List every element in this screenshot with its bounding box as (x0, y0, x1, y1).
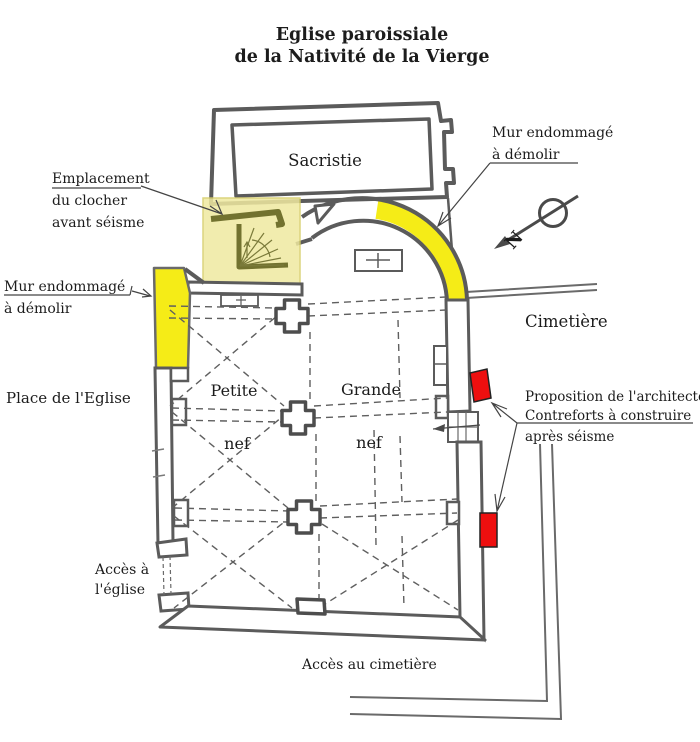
damaged-wall-right-line1: Mur endommagé (492, 125, 613, 141)
east-wall-upper (446, 300, 470, 412)
west-pilaster-1 (171, 368, 188, 381)
pier-1 (276, 300, 308, 332)
damaged-wall-left-line1: Mur endommagé (4, 279, 125, 295)
small-nave-label-1: Petite (211, 381, 258, 400)
nave-piers (276, 300, 325, 614)
north-arrow-icon: N (494, 196, 578, 253)
large-nave-transverse-arches (308, 297, 457, 518)
junction-marker-arrow-icon (433, 424, 445, 432)
east-window-niche (434, 346, 447, 385)
engaged-pier-south (297, 599, 325, 614)
large-nave-vault-cross (322, 520, 458, 610)
east-pilaster-1 (436, 396, 448, 418)
cemetery-access-label: Accès au cimetière (301, 657, 437, 673)
large-nave-longitudinal-ribs (310, 320, 404, 608)
cemetery-north-wall (466, 284, 597, 298)
damaged-wall-right-leader (438, 163, 578, 226)
west-wall (155, 368, 173, 545)
church-access-label-1: Accès à (94, 561, 149, 578)
cemetery-path-outer (350, 444, 561, 719)
large-nave-label-1: Grande (341, 380, 401, 399)
architect-proposal-line2: Contreforts à construire (525, 408, 691, 424)
architect-proposal-line1: Proposition de l'architecte (525, 389, 700, 405)
entrance-opening (163, 556, 171, 595)
buttress-2 (480, 513, 497, 547)
bell-tower-annotation-line2: du clocher (52, 193, 127, 209)
page-title-line1: Eglise paroissiale (276, 25, 449, 45)
apse (296, 198, 467, 302)
large-nave-label-2: nef (356, 433, 383, 452)
small-nave-label-2: nef (224, 434, 251, 453)
floor-plan-drawing: N Eglise paroissiale de la Nativité de l… (0, 0, 700, 742)
bell-tower-annotation-line3: avant séisme (52, 215, 144, 231)
vault-rib-lines (169, 297, 458, 610)
sacristy-label: Sacristie (288, 151, 362, 170)
damaged-wall-right-line2: à démolir (492, 146, 560, 163)
page-title-line2: de la Nativité de la Vierge (235, 47, 490, 67)
damaged-wall-left-line2: à démolir (4, 300, 72, 317)
church-square-label: Place de l'Eglise (6, 389, 131, 407)
small-nave-north-wall (188, 282, 302, 295)
cemetery-label: Cimetière (525, 312, 608, 331)
bell-tower-annotation-line1: Emplacement (52, 171, 150, 187)
entrance-jamb-upper (157, 539, 187, 557)
buttress-1 (470, 369, 491, 402)
pier-2 (282, 402, 314, 434)
apse-wall-niche (315, 204, 334, 223)
architect-proposal-line3: après séisme (525, 429, 614, 445)
church-plan-page: N Eglise paroissiale de la Nativité de l… (0, 0, 700, 742)
pier-3 (288, 501, 320, 533)
church-access-label-2: l'église (95, 582, 145, 598)
